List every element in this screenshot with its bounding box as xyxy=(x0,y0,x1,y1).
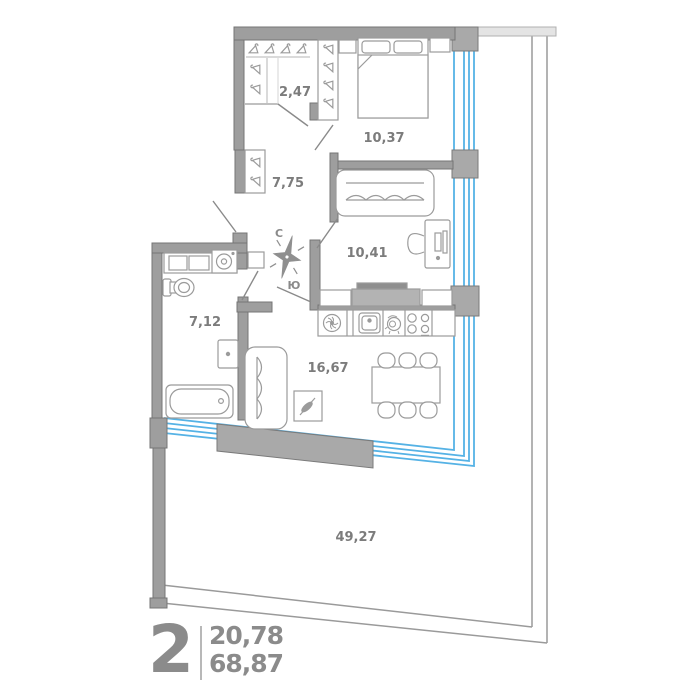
wardrobe-room xyxy=(245,40,338,120)
bedroom-door xyxy=(315,125,333,150)
desk-chair xyxy=(408,234,424,254)
hanger-icon xyxy=(297,44,306,53)
hanger-icon xyxy=(281,44,290,53)
wall-terrace-left-cap-bottom xyxy=(150,598,167,608)
desk-dot xyxy=(437,257,440,260)
blanket xyxy=(358,55,428,118)
wardrobe-door xyxy=(278,104,308,126)
glazing-mullion-block xyxy=(217,424,373,468)
study-door xyxy=(317,218,338,248)
nightstand xyxy=(430,38,450,52)
dining-chair xyxy=(399,402,416,418)
room-label-study: 10,41 xyxy=(346,246,387,261)
wall-bathroom-left xyxy=(152,253,162,420)
dining-table xyxy=(372,367,440,403)
hanger-icon xyxy=(251,85,260,94)
wall-wardrobe-stub xyxy=(310,103,318,120)
monitor-icon xyxy=(435,233,441,251)
bath-cabinet xyxy=(169,256,187,270)
tv-stand xyxy=(352,289,420,306)
wall-hall-study xyxy=(310,240,320,310)
wall-terrace-left-cap-top xyxy=(150,418,167,448)
tv-cabinet xyxy=(422,290,452,306)
floor-plan-page: С Ю 2,47 10,37 7,75 10,41 7,12 16,67 49,… xyxy=(0,0,700,700)
nightstand xyxy=(339,40,356,53)
study-furniture xyxy=(320,170,452,306)
dining-chair xyxy=(399,353,416,368)
total-area-value: 68,87 xyxy=(209,650,283,678)
room-label-bedroom: 10,37 xyxy=(363,131,404,146)
tv xyxy=(357,283,407,289)
dining-chair xyxy=(378,402,395,418)
wall-kitchen-top xyxy=(237,302,272,312)
wall-bedroom-study xyxy=(330,161,453,169)
room-label-wardrobe: 2,47 xyxy=(279,85,311,100)
tv-cabinet xyxy=(320,290,351,306)
sofa xyxy=(336,170,434,216)
hall-closet-box xyxy=(245,150,265,193)
pillow xyxy=(362,41,390,53)
apartment-summary: 2 20,78 68,87 xyxy=(148,616,283,684)
bathroom-fixtures xyxy=(163,250,238,418)
rooms-count: 2 xyxy=(148,616,192,684)
plant-box xyxy=(294,391,322,421)
dining-chair xyxy=(420,353,437,368)
hall-closet xyxy=(245,150,265,268)
monitor-icon xyxy=(443,231,447,253)
hanger-icon xyxy=(251,65,260,74)
room-label-kitchen-living: 16,67 xyxy=(307,361,348,376)
wall-wardrobe-left xyxy=(234,40,244,150)
pillar xyxy=(452,27,478,51)
dining-chair xyxy=(420,402,437,418)
room-label-terrace: 49,27 xyxy=(335,530,376,545)
bathtub xyxy=(166,385,233,418)
compass-north-label: С xyxy=(275,227,283,240)
entry-door xyxy=(213,201,236,232)
wall-hall-left xyxy=(235,150,245,193)
wall-bathroom-right-upper xyxy=(237,253,247,269)
kitchen-counter xyxy=(318,310,455,336)
living-sofa xyxy=(245,347,287,429)
floor-plan-drawing: С Ю 2,47 10,37 7,75 10,41 7,12 16,67 49,… xyxy=(0,0,700,700)
compass: С Ю xyxy=(268,227,306,292)
pillar xyxy=(452,150,478,178)
dining-chair xyxy=(378,353,395,368)
toilet xyxy=(163,279,194,297)
kitchen-furniture xyxy=(245,310,455,429)
bedroom-closet xyxy=(318,40,338,120)
sink-icon xyxy=(359,313,380,333)
bathroom-door xyxy=(242,271,258,300)
pillow xyxy=(394,41,422,53)
living-area-value: 20,78 xyxy=(209,622,283,650)
summary-divider xyxy=(200,626,202,680)
hall-cabinet xyxy=(248,252,264,268)
bathroom-sink xyxy=(218,340,238,368)
washing-machine xyxy=(212,250,237,273)
compass-south-label: Ю xyxy=(288,279,301,292)
hanger-icon xyxy=(265,44,274,53)
vent-fan-icon xyxy=(324,315,341,332)
hanger-icon xyxy=(249,44,258,53)
bath-cabinet xyxy=(189,256,209,270)
bedroom-furniture xyxy=(339,38,450,118)
room-label-hall: 7,75 xyxy=(272,176,304,191)
room-label-bathroom: 7,12 xyxy=(189,315,221,330)
